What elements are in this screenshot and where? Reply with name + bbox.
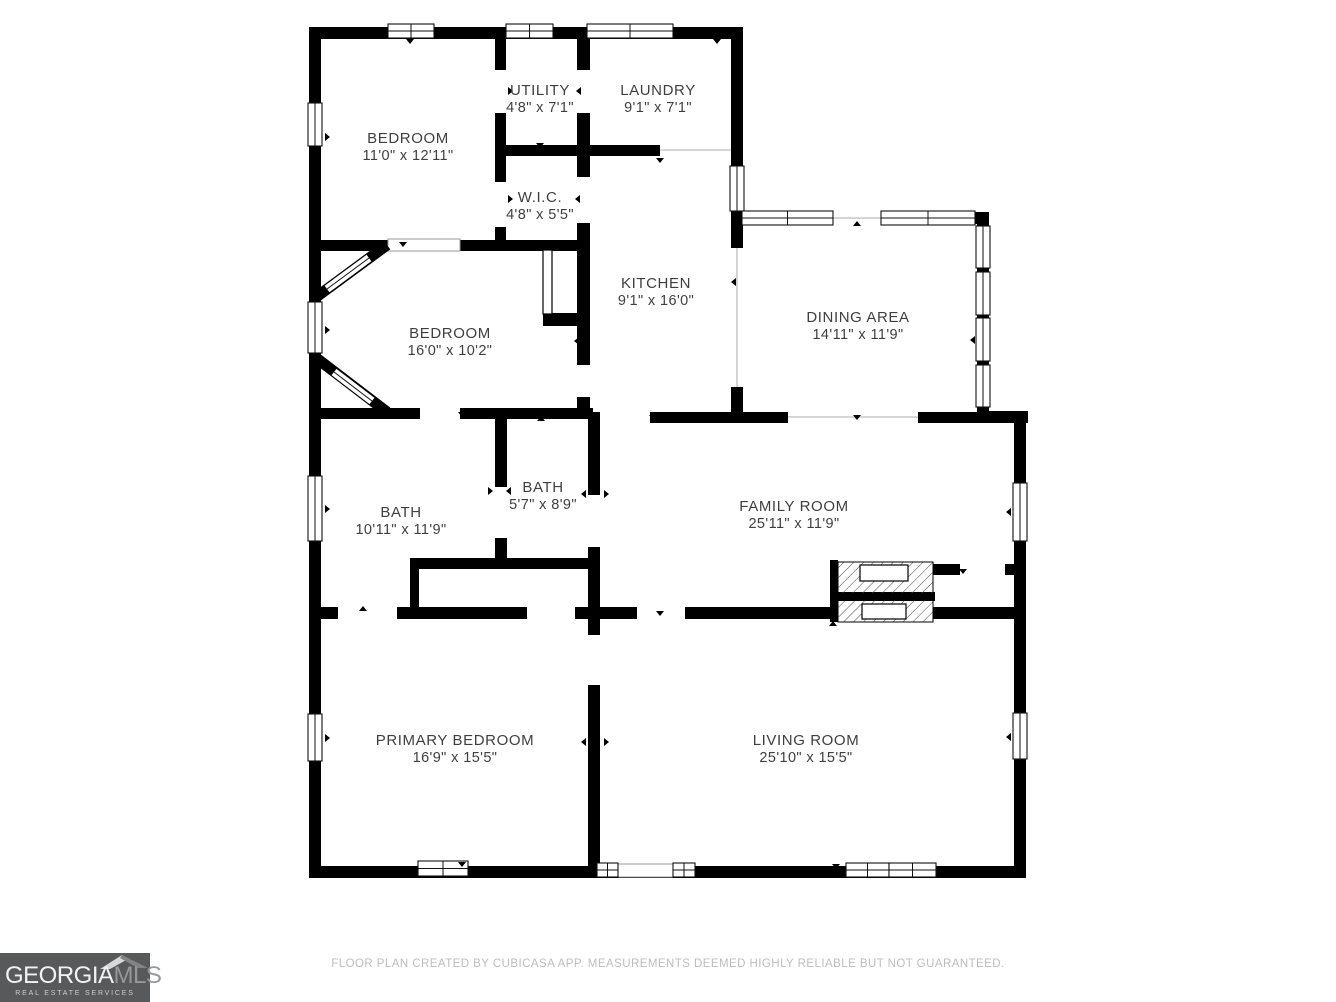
door-marker (325, 326, 330, 334)
room-dims-kitchen: 9'1" x 16'0" (618, 293, 694, 309)
room-label-bedroom-1: BEDROOM (367, 130, 449, 147)
door-opening (588, 635, 600, 685)
room-label-primary-bedroom: PRIMARY BEDROOM (376, 732, 534, 749)
door-marker (1006, 733, 1011, 741)
footer-disclaimer: FLOOR PLAN CREATED BY CUBICASA APP. MEAS… (0, 958, 1336, 970)
room-dims-bedroom-1: 11'0" x 12'11" (362, 148, 453, 164)
door-marker (581, 490, 586, 498)
cased-opening (388, 239, 460, 251)
georgia-mls-logo: GEORGIAMLS REAL ESTATE SERVICES (0, 953, 150, 1002)
room-label-bedroom-2: BEDROOM (409, 325, 491, 342)
door-marker (406, 39, 414, 44)
door-opening (495, 487, 507, 538)
room-dims-primary-bedroom: 16'9" x 15'5" (413, 750, 498, 766)
room-dims-utility: 4'8" x 7'1" (506, 100, 574, 116)
door-opening (338, 607, 397, 619)
room-dims-laundry: 9'1" x 7'1" (624, 100, 692, 116)
bay-window-glass-line (327, 258, 369, 289)
logo-text-mls: MLS (114, 962, 162, 989)
room-label-bath-1: BATH (380, 504, 421, 521)
door-marker (970, 336, 975, 344)
room-dims-dining-area: 14'11" x 11'9" (812, 327, 903, 343)
room-dims-bedroom-2: 16'0" x 10'2" (408, 343, 493, 359)
wall (933, 607, 1026, 619)
room-labels-layer: BEDROOM11'0" x 12'11"UTILITY4'8" x 7'1"L… (355, 82, 909, 766)
logo-tagline: REAL ESTATE SERVICES (0, 990, 150, 997)
wall (1005, 564, 1016, 575)
room-dims-living-room: 25'10" x 15'5" (759, 750, 852, 766)
fireplace-firebox (860, 565, 908, 581)
door-opening (527, 607, 575, 619)
floorplan-page: BEDROOM11'0" x 12'11"UTILITY4'8" x 7'1"L… (0, 0, 1336, 1002)
door-marker (713, 39, 721, 44)
room-dims-family-room: 25'11" x 11'9" (748, 516, 839, 532)
door-opening (588, 495, 600, 547)
logo-text-georgia: GEORGIA (5, 962, 114, 989)
room-label-kitchen: KITCHEN (621, 275, 691, 292)
door-opening (495, 70, 506, 113)
door-opening (600, 412, 650, 423)
door-marker (604, 490, 609, 498)
door-marker (325, 734, 330, 742)
room-label-living-room: LIVING ROOM (753, 732, 860, 749)
door-marker (325, 505, 330, 513)
wall (495, 145, 660, 156)
cased-opening (618, 864, 674, 877)
door-marker (581, 738, 586, 746)
room-label-wic: W.I.C. (518, 189, 562, 206)
room-label-utility: UTILITY (510, 82, 570, 99)
room-dims-bath-2: 5'7" x 8'9" (509, 497, 577, 513)
wall (1014, 411, 1026, 878)
wall (918, 412, 1028, 423)
door-opening (420, 408, 460, 419)
door-opening (495, 182, 506, 227)
wall (830, 560, 838, 622)
door-opening (960, 564, 1005, 575)
room-dims-wic: 4'8" x 5'5" (506, 207, 574, 223)
door-marker (325, 133, 330, 141)
wall (410, 558, 593, 569)
room-label-bath-2: BATH (522, 479, 563, 496)
door-opening (577, 365, 590, 397)
room-label-family-room: FAMILY ROOM (739, 498, 848, 515)
door-marker (1006, 508, 1011, 516)
wall (543, 313, 590, 326)
room-label-laundry: LAUNDRY (620, 82, 696, 99)
door-marker (508, 195, 513, 203)
opening-lines-layer (660, 150, 918, 417)
door-marker (574, 337, 579, 345)
fireplace-firebox (862, 604, 906, 619)
bay-window-glass-line (334, 372, 372, 401)
door-marker (656, 158, 664, 163)
floorplan-canvas: BEDROOM11'0" x 12'11"UTILITY4'8" x 7'1"L… (0, 0, 1336, 1002)
room-dims-bath-1: 10'11" x 11'9" (355, 522, 446, 538)
door-marker (604, 738, 609, 746)
door-marker (488, 487, 493, 495)
wall (933, 564, 960, 575)
room-label-dining-area: DINING AREA (806, 309, 909, 326)
door-leaf (543, 250, 552, 314)
